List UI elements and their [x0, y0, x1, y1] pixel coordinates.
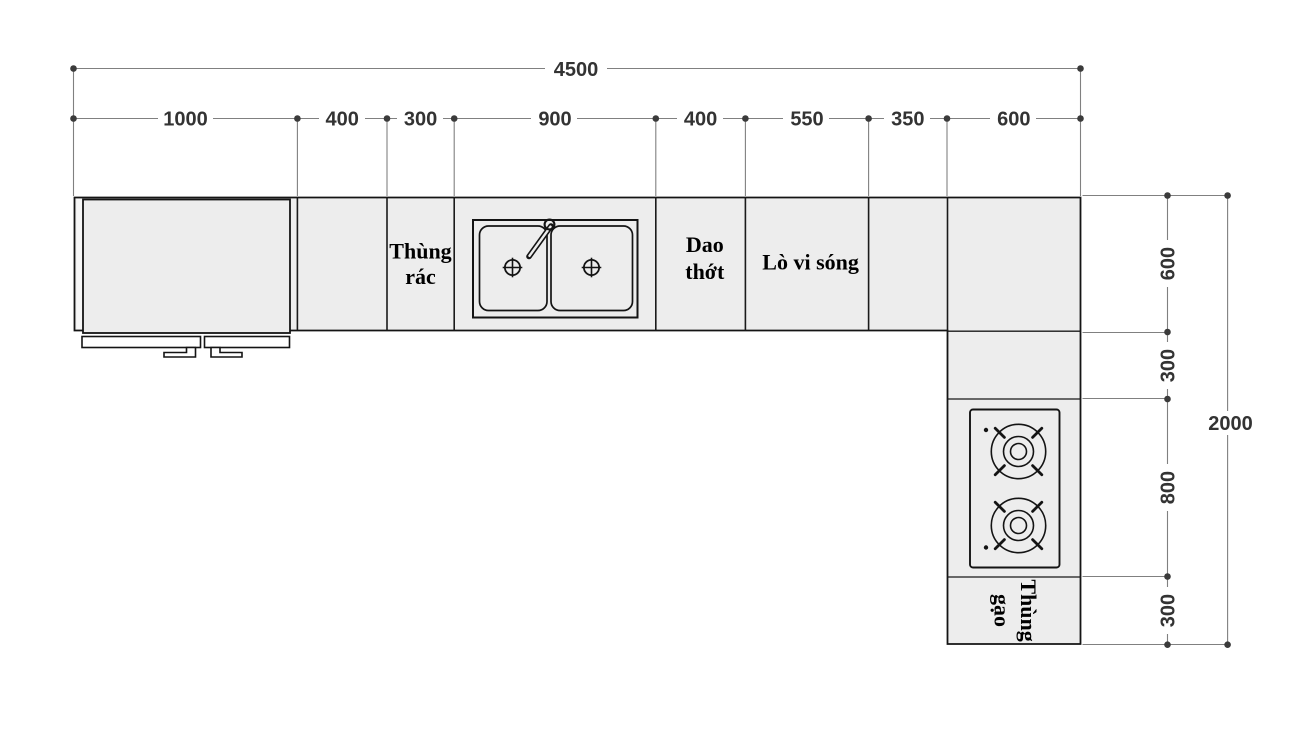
svg-text:600: 600	[997, 109, 1030, 131]
svg-text:Dao: Dao	[686, 232, 724, 257]
svg-text:1000: 1000	[163, 109, 208, 131]
svg-text:400: 400	[684, 109, 717, 131]
svg-text:300: 300	[404, 109, 437, 131]
svg-text:Thùng: Thùng	[1016, 579, 1041, 641]
svg-text:800: 800	[1158, 471, 1180, 504]
svg-text:4500: 4500	[554, 59, 599, 81]
svg-text:400: 400	[326, 109, 359, 131]
svg-text:rác: rác	[405, 264, 436, 289]
svg-text:900: 900	[538, 109, 571, 131]
svg-text:300: 300	[1158, 349, 1180, 382]
svg-text:550: 550	[790, 109, 823, 131]
svg-text:300: 300	[1158, 594, 1180, 627]
svg-text:2000: 2000	[1208, 413, 1253, 435]
svg-text:Thùng: Thùng	[389, 239, 451, 264]
svg-text:Lò vi sóng: Lò vi sóng	[762, 250, 859, 275]
svg-text:600: 600	[1158, 247, 1180, 280]
svg-text:350: 350	[891, 109, 924, 131]
svg-text:gạo: gạo	[990, 594, 1015, 627]
svg-text:thớt: thớt	[685, 259, 725, 284]
